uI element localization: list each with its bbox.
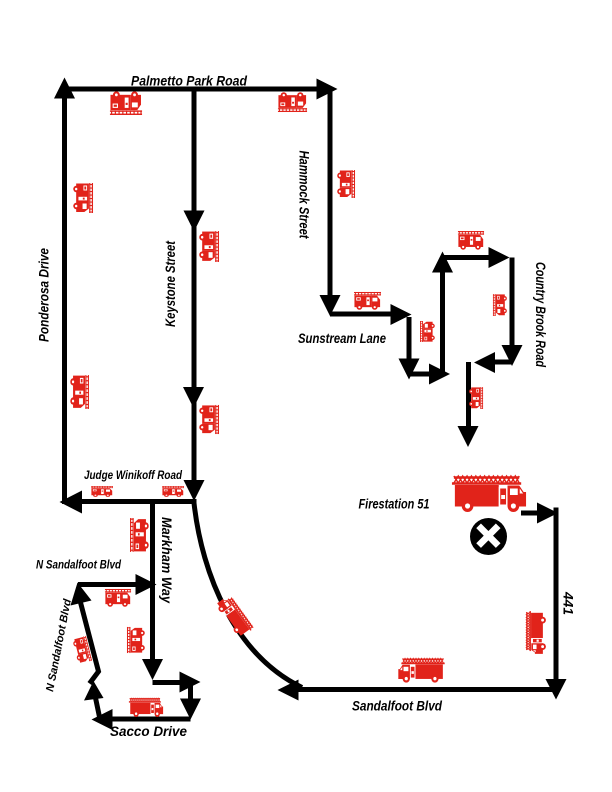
svg-text:Markham Way: Markham Way — [159, 517, 175, 604]
svg-text:Sacco Drive: Sacco Drive — [110, 723, 187, 739]
svg-text:Country Brook Road: Country Brook Road — [533, 262, 549, 367]
svg-text:Palmetto Park Road: Palmetto Park Road — [131, 73, 247, 89]
svg-text:Hammock Street: Hammock Street — [297, 151, 313, 240]
svg-text:Judge Winikoff Road: Judge Winikoff Road — [84, 470, 183, 482]
svg-text:Ponderosa Drive: Ponderosa Drive — [36, 248, 52, 342]
svg-text:N Sandalfoot Blvd: N Sandalfoot Blvd — [36, 560, 122, 572]
svg-text:441: 441 — [561, 591, 577, 615]
svg-text:Keystone Street: Keystone Street — [162, 240, 178, 327]
svg-text:Sandalfoot Blvd: Sandalfoot Blvd — [352, 698, 442, 714]
svg-text:Sunstream Lane: Sunstream Lane — [298, 330, 386, 346]
svg-text:Firestation 51: Firestation 51 — [359, 496, 430, 512]
